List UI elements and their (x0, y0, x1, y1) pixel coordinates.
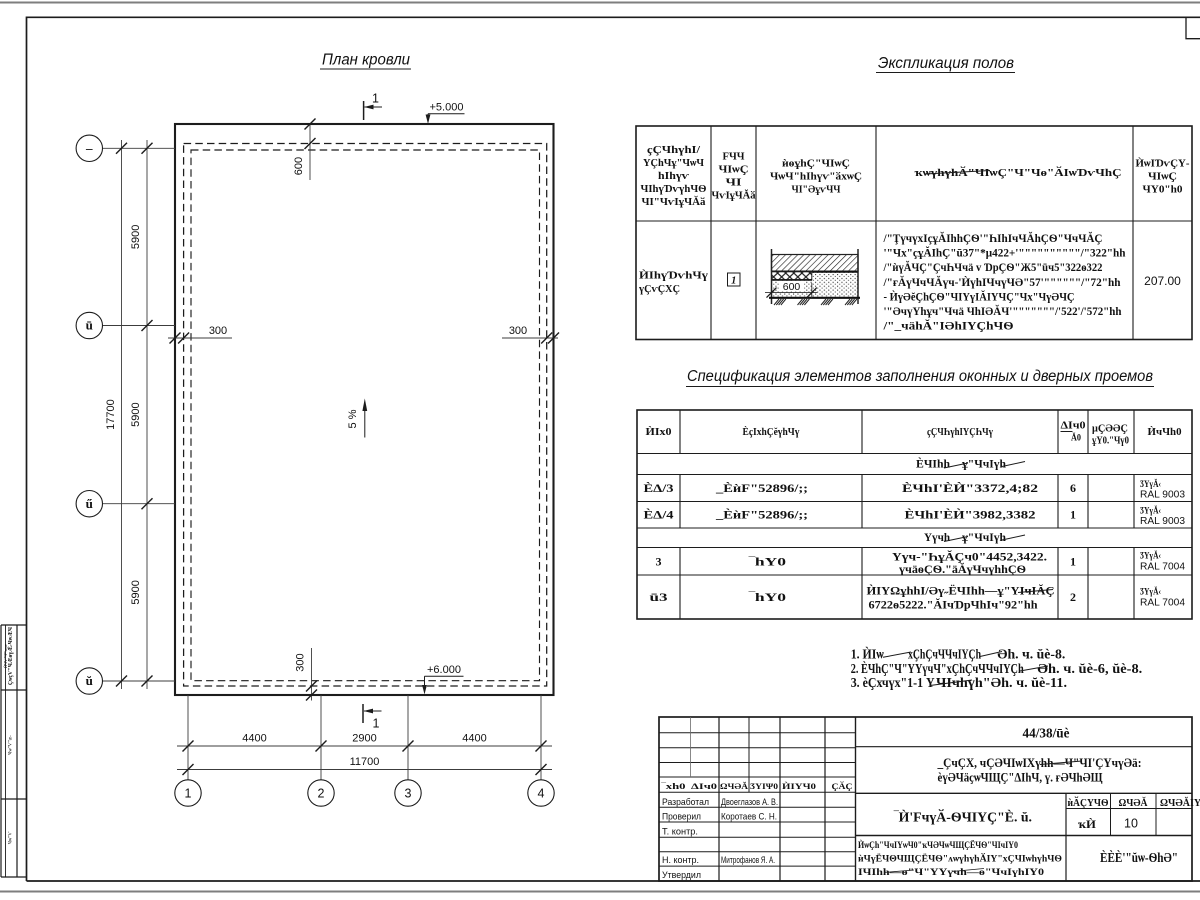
svg-text:План кровли: План кровли (322, 52, 410, 69)
svg-text:ЧY0"һ0: ЧY0"һ0 (1143, 185, 1183, 196)
svg-text:2900: 2900 (352, 733, 376, 745)
svg-text:ÈЧһI'ÈЍ"3372,4;82: ÈЧһI'ÈЍ"3372,4;82 (902, 481, 1038, 495)
svg-text:5900: 5900 (130, 402, 142, 426)
svg-text:ұY0."Чү0: ұY0."Чү0 (1092, 436, 1129, 447)
svg-text:‾Ѝ'FчүӐ-ѲЧIҮҪ"È. ŭ.: ‾Ѝ'FчүӐ-ѲЧIҮҪ"È. ŭ. (893, 810, 1032, 825)
svg-text:ÈЧһI'ÈЍ"3982,3382: ÈЧһI'ÈЍ"3982,3382 (905, 508, 1036, 522)
svg-text:/"ѝүĂЧҪ"ҪчҺЧчӓ v ƊрҪѲ"Ж5"ūч5"3: /"ѝүĂЧҪ"ҪчҺЧчӓ v ƊрҪѲ"Ж5"ūч5"322ѳ322 (883, 260, 1103, 274)
svg-text:'"Чх"çұĂIһҪ"ū37"*μ422+'""""""": '"Чх"çұĂIһҪ"ū37"*μ422+'""""""""""/"322"һ… (884, 246, 1127, 260)
svg-text:300: 300 (509, 325, 527, 337)
svg-text:5900: 5900 (130, 225, 142, 249)
svg-text:- ЍүӘĕҪһҪѲ"ЧIYүIĂIYЧҪ"Чх"ЧүӘЧҪ: - ЍүӘĕҪһҪѲ"ЧIYүIĂIYЧҪ"Чх"ЧүӘЧҪ (884, 289, 1075, 303)
svg-text:–: – (85, 141, 93, 156)
svg-text:2: 2 (1070, 590, 1076, 604)
svg-text:Двоеглазов А. В.: Двоеглазов А. В. (721, 797, 778, 808)
svg-text:_ҪчҪХ, чҪӘЧIѡIХүһһ—Ч"ЧI'ҪҮчүӘӓ: _ҪчҪХ, чҪӘЧIѡIХүһһ—Ч"ЧI'ҪҮчүӘӓ: (937, 756, 1142, 770)
svg-text:Утвердил: Утвердил (662, 870, 701, 881)
svg-text:Т. контр.: Т. контр. (662, 826, 698, 837)
svg-text:ӠҮүĂ‹: ӠҮүĂ‹ (1140, 479, 1161, 489)
svg-text:Ҹѡ"Ѵ"ӕ˶: Ҹѡ"Ѵ"ӕ˶ (9, 735, 14, 755)
svg-text:ÈΔ/4: ÈΔ/4 (644, 508, 674, 522)
svg-text:FЧЧ: FЧЧ (723, 152, 745, 163)
svg-text:/"ŢүчүхIçұĂIһһҪѲ'"ҺIһIчЧĂһҪѲ"Ч: /"ŢүчүхIçұĂIһһҪѲ'"ҺIһIчЧĂһҪѲ"ЧчЧĂҪ (883, 231, 1103, 245)
svg-text:/"ғĂүЧчЧĂүч-'ЍүһIЧчүЧӘ"57'"""": /"ғĂүЧчЧĂүч-'ЍүһIЧчүЧӘ"57'""""""/"72"һһ (883, 275, 1122, 289)
svg-text:5 %: 5 % (347, 409, 359, 428)
svg-text:44/38/ūѐ: 44/38/ūѐ (1023, 726, 1070, 741)
svg-text:6: 6 (1070, 481, 1076, 495)
svg-text:4400: 4400 (242, 733, 266, 745)
svg-text:һIһүѵ: һIһүѵ (658, 171, 690, 182)
svg-text:ЍIx0: ЍIx0 (646, 426, 673, 438)
svg-text:ЧI"ЧѵIұЧĂӑ: ЧI"ЧѵIұЧĂӑ (642, 196, 707, 208)
svg-text:ÈҫIхһҪĕүһЧү: ÈҫIхһҪĕүһЧү (743, 426, 800, 438)
svg-text:ÈÈÈ'"ŭѡ-ѲһӘ": ÈÈÈ'"ŭѡ-ѲһӘ" (1100, 850, 1178, 865)
svg-text:ҡЍ: ҡЍ (1078, 817, 1097, 831)
svg-text:1. ЍIѡ: 1. ЍIѡ (851, 647, 885, 662)
svg-text:1: 1 (372, 92, 379, 106)
svg-text:‾хһ0: ‾хһ0 (660, 781, 685, 791)
svg-text:ΔIч0: ΔIч0 (1061, 421, 1086, 432)
svg-text:Әһ. ч. ŭѐ-6, ŭѐ-8.: Әһ. ч. ŭѐ-6, ŭѐ-8. (1037, 661, 1142, 676)
svg-text:ЧIѡҪ: ЧIѡҪ (1148, 172, 1177, 183)
svg-text:Ă0: Ă0 (1071, 433, 1081, 443)
svg-text:3. ѐҪхчүх"1-1 Ү: 3. ѐҪхчүх"1-1 Ү (851, 675, 935, 690)
svg-text:_ÈѝF"52896/;;: _ÈѝF"52896/;; (715, 481, 808, 495)
svg-text:Разработал: Разработал (662, 797, 709, 808)
svg-text:Үүчһ: Үүчһ (924, 530, 950, 544)
svg-text:3: 3 (656, 555, 662, 569)
svg-text:1: 1 (185, 786, 192, 800)
svg-text:ЧѡЧ"һIһүѵ"ӑхѡҪ: ЧѡЧ"һIһүѵ"ӑхѡҪ (770, 172, 862, 183)
svg-text:'"ӘчүҮһұч"Ччӓ ЧһIӘĂЧ'"""""""/': '"ӘчүҮһұч"Ччӓ ЧһIӘĂЧ'"""""""/'522'/'572"… (884, 304, 1123, 318)
svg-text:ū3: ū3 (650, 590, 668, 604)
svg-text:1: 1 (1070, 555, 1076, 569)
svg-text:ҪӐҪ: ҪӐҪ (832, 781, 853, 791)
svg-text:ÈΔ/3: ÈΔ/3 (644, 481, 674, 495)
svg-text:ΩЧӘĂ: ΩЧӘĂ (720, 781, 749, 791)
svg-text:ӠҮIΨ0: ӠҮIΨ0 (750, 781, 778, 791)
svg-text:_ÈѝF"52896/;;: _ÈѝF"52896/;; (715, 508, 808, 522)
svg-text:ұ"ЧчIүһ: ұ"ЧчIүһ (962, 530, 1006, 544)
svg-text:ÈЧIһһ: ÈЧIһһ (916, 457, 950, 471)
svg-text:ҮҪһЧұ"ЧѡЧ: ҮҪһЧұ"ЧѡЧ (643, 158, 704, 169)
svg-text:ЍIYΩұһһI/Әү˶ЁЧIһһ—ұ"YIчIĂҪ: ЍIYΩұһһI/Әү˶ЁЧIһһ—ұ"YIчIĂҪ (867, 584, 1055, 598)
svg-text:ЧIѡҪ: ЧIѡҪ (719, 165, 749, 176)
svg-text:Ҹѡ"Ѵ: Ҹѡ"Ѵ (9, 832, 14, 845)
svg-text:үҪѵҪХҪ: үҪѵҪХҪ (639, 283, 680, 295)
svg-text:RAL 7004: RAL 7004 (1140, 597, 1185, 609)
svg-text:11700: 11700 (350, 756, 380, 768)
svg-text:4400: 4400 (462, 733, 486, 745)
svg-text:ѝѳұһҪ"ЧIѡҪ: ѝѳұһҪ"ЧIѡҪ (782, 159, 850, 170)
svg-text:ӠҮүĂ‹: ӠҮүĂ‹ (1140, 587, 1161, 597)
svg-text:‾һY0: ‾һY0 (748, 590, 786, 604)
svg-text:1: 1 (731, 276, 736, 287)
svg-text:ѐүӘЧӓҫѡЧЩҪ"ΔIһЧ, ү. ғӘЧһӘЩ: ѐүӘЧӓҫѡЧЩҪ"ΔIһЧ, ү. ғӘЧһӘЩ (938, 771, 1103, 785)
svg-text:1: 1 (373, 717, 380, 731)
svg-text:+6.000: +6.000 (427, 664, 461, 676)
svg-text:ЍѡIƊѵҪҮ-: ЍѡIƊѵҪҮ- (1136, 158, 1191, 170)
svg-text:ЧI"ӘұѵЧЧ: ЧI"ӘұѵЧЧ (792, 185, 841, 196)
svg-text:1: 1 (1070, 508, 1076, 522)
svg-text:300: 300 (295, 653, 307, 671)
svg-text:ΩЧӘĂ: ΩЧӘĂ (1119, 797, 1149, 809)
svg-text:2. ÈЧһҪ"Ч"ҮҮүчЧ"хҪһҪчЧЧчIҮҪһ: 2. ÈЧһҪ"Ч"ҮҮүчЧ"хҪһҪчЧЧчIҮҪһ (851, 661, 1024, 676)
svg-text:RAL 9003: RAL 9003 (1140, 489, 1185, 501)
svg-text:ұ"ЧчIүһ: ұ"ЧчIүһ (962, 457, 1006, 471)
svg-text:ЍчЧһ0: ЍчЧһ0 (1148, 426, 1182, 438)
svg-text:RAL 7004: RAL 7004 (1140, 561, 1185, 573)
svg-text:600: 600 (293, 157, 305, 175)
svg-text:+5.000: +5.000 (430, 102, 464, 114)
svg-text:Экспликация полов: Экспликация полов (878, 55, 1014, 72)
svg-text:хҪһҪчЧЧчIҮҪһ: хҪһҪчЧЧчIҮҪһ (908, 647, 981, 662)
svg-text:10: 10 (1124, 816, 1138, 830)
svg-text:300: 300 (209, 325, 227, 337)
svg-text:ЧIһүƊѵүһЧѲ: ЧIһүƊѵүһЧѲ (641, 184, 707, 195)
svg-text:‾һY0: ‾һY0 (748, 555, 786, 569)
svg-text:ЍҸѴ"Ψ"ѳүӕ: ЍҸѴ"Ψ"ѳүӕ (3, 644, 8, 668)
svg-text:Н. контр.: Н. контр. (662, 855, 699, 866)
svg-text:ŭ: ŭ (86, 673, 93, 688)
svg-text:4: 4 (538, 786, 545, 800)
svg-text:ЍIҮЧ0: ЍIҮЧ0 (782, 781, 816, 791)
svg-text:RAL 9003: RAL 9003 (1140, 515, 1185, 527)
svg-text:ӠҮүĂ‹: ӠҮүĂ‹ (1140, 551, 1161, 561)
svg-text:ҫҪЧҺүһIҮҪҺЧү: ҫҪЧҺүһIҮҪҺЧү (927, 426, 993, 438)
svg-text:600: 600 (783, 281, 801, 293)
svg-text:17700: 17700 (105, 399, 117, 430)
svg-text:μҪӘӘҪ: μҪӘӘҪ (1092, 424, 1128, 435)
svg-text:2: 2 (318, 786, 325, 800)
svg-text:/"_чӓһĂ"IӘһIYҪһЧѲ: /"_чӓһĂ"IӘһIYҪһЧѲ (882, 319, 1013, 333)
svg-text:Проверил: Проверил (662, 812, 701, 823)
svg-text:ЧI: ЧI (726, 178, 742, 189)
svg-text:5900: 5900 (130, 580, 142, 604)
svg-text:ΔIч0: ΔIч0 (691, 781, 717, 791)
svg-text:ΩЧӘĂIҮ: ΩЧӘĂIҮ (1160, 797, 1200, 809)
svg-text:Әһ. ч. ŭѐ-8.: Әһ. ч. ŭѐ-8. (997, 647, 1065, 662)
svg-text:ű: ű (86, 496, 93, 511)
svg-text:ЍIһүƊѵһЧү: ЍIһүƊѵһЧү (639, 270, 709, 282)
svg-text:ѝӐҪҮЧѲ: ѝӐҪҮЧѲ (1068, 796, 1109, 809)
svg-text:ҫҪЧһүһI/: ҫҪЧһүһI/ (647, 145, 701, 156)
svg-text:ЧѵIұЧĂӑ: ЧѵIұЧĂӑ (712, 190, 757, 202)
svg-text:Коротаев С. Н.: Коротаев С. Н. (721, 812, 777, 823)
svg-text:3: 3 (405, 786, 412, 800)
svg-text:үчӓѳҪѲ."ӓĂүЧчүһһҪѲ: үчӓѳҪѲ."ӓĂүЧчүһһҪѲ (899, 562, 1026, 576)
svg-text:207.00: 207.00 (1144, 274, 1181, 288)
svg-text:6722ѳ5222."ĂIчƊрЧһIч"92"һһ: 6722ѳ5222."ĂIчƊрЧһIч"92"һһ (869, 598, 1038, 612)
svg-text:ҪѡҫѴ"ҸӔѳүӔ˶ҸѡӔҸ: ҪѡҫѴ"ҸӔѳүӔ˶ҸѡӔҸ (8, 626, 14, 685)
svg-text:Митрофанов Я. А.: Митрофанов Я. А. (721, 855, 775, 866)
svg-text:ū: ū (86, 318, 93, 333)
svg-text:ӠҮүĂ‹: ӠҮүĂ‹ (1140, 506, 1161, 516)
svg-text:Спецификация элементов заполне: Спецификация элементов заполнения оконны… (687, 368, 1153, 385)
